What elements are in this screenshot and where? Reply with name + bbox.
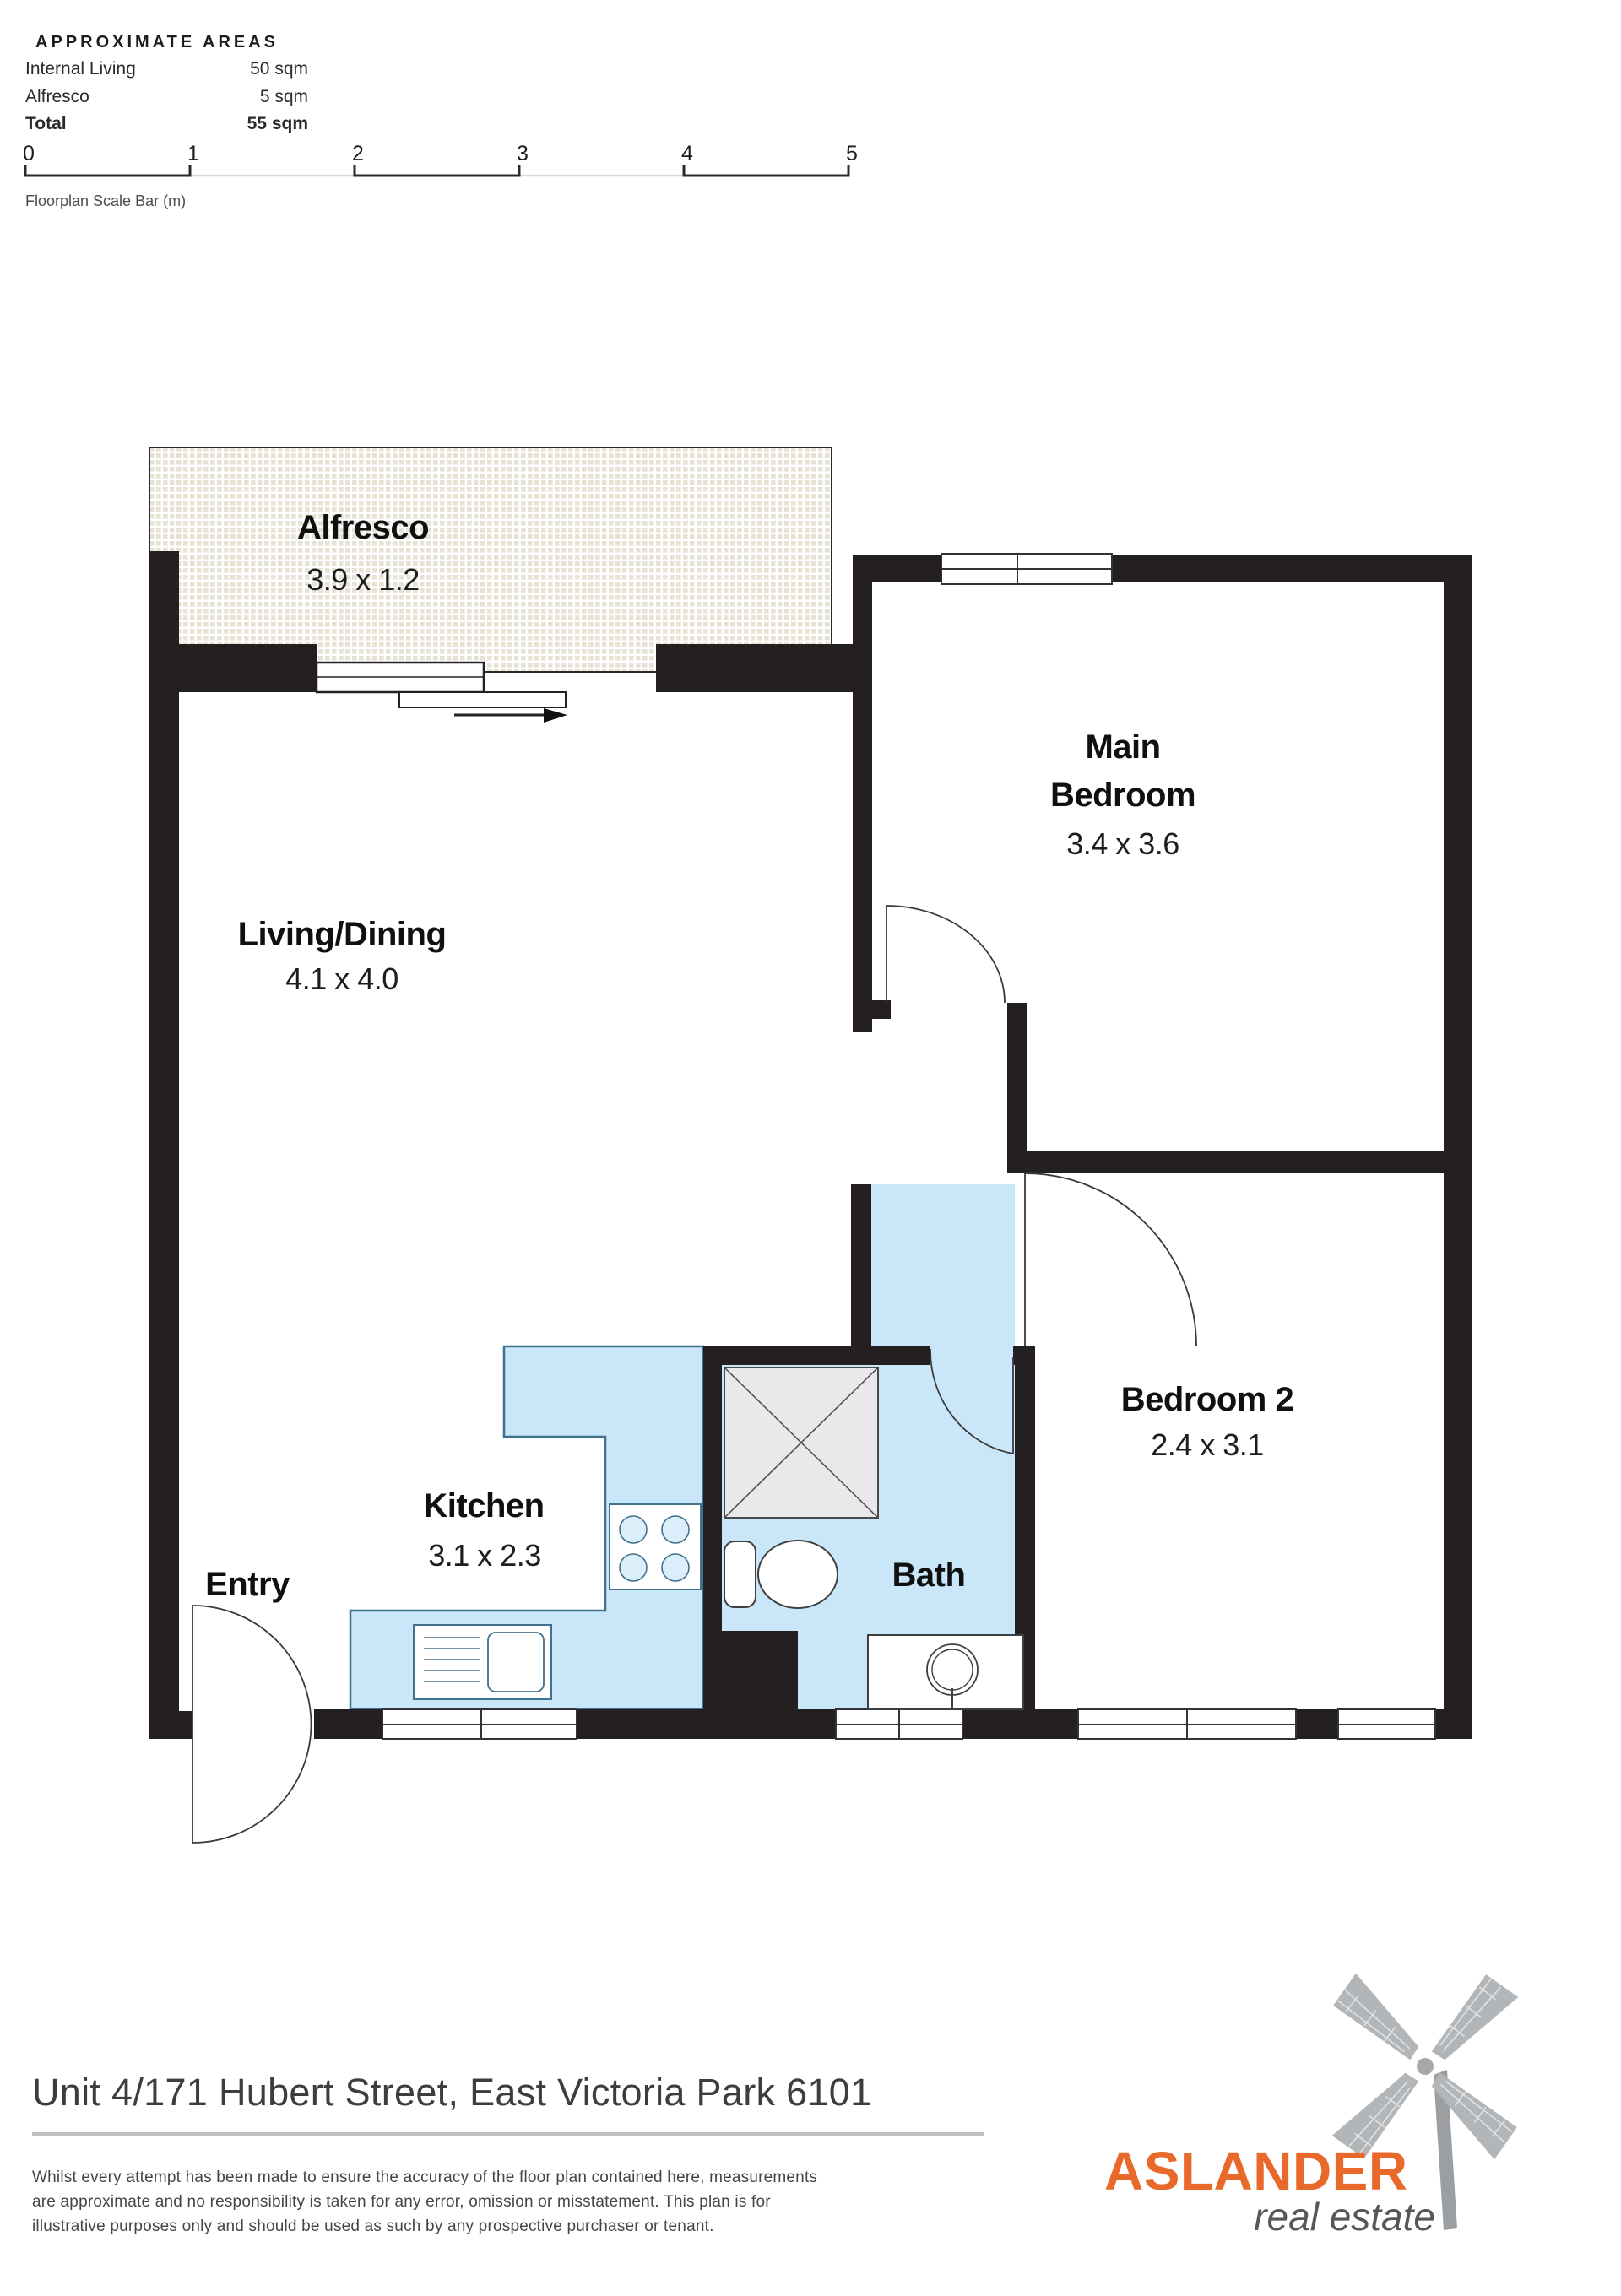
wall-west bbox=[149, 551, 179, 1711]
label-living: Living/Dining bbox=[238, 916, 447, 953]
scale-bar-segment bbox=[684, 165, 848, 176]
cooktop bbox=[610, 1504, 701, 1589]
label-main-bedroom-1: Main bbox=[1085, 728, 1160, 766]
label-entry: Entry bbox=[205, 1566, 290, 1603]
scale-bar-caption: Floorplan Scale Bar (m) bbox=[25, 192, 186, 209]
window-main-bedroom bbox=[941, 554, 1112, 584]
floorplan-page: APPROXIMATE AREAS Internal Living 50 sqm… bbox=[0, 0, 1621, 2292]
floorplan-canvas: APPROXIMATE AREAS Internal Living 50 sqm… bbox=[0, 0, 1621, 2292]
sink bbox=[414, 1625, 551, 1699]
disclaimer-line: Whilst every attempt has been made to en… bbox=[32, 2169, 817, 2186]
scale-tick-label: 5 bbox=[846, 142, 858, 165]
wall-hall-corner bbox=[1007, 1003, 1027, 1151]
scale-tick-label: 4 bbox=[681, 142, 693, 165]
wall-bedroom-north-east bbox=[1112, 555, 1472, 582]
brand-logo: ASLANDER real estate bbox=[1104, 1969, 1522, 2239]
vestibule-floor bbox=[871, 1184, 1015, 1365]
wall-south-4 bbox=[1296, 1709, 1338, 1739]
shower bbox=[724, 1367, 878, 1518]
dims-living: 4.1 x 4.0 bbox=[285, 961, 398, 996]
disclaimer-line: illustrative purposes only and should be… bbox=[32, 2217, 714, 2235]
areas-row-value: 5 sqm bbox=[260, 87, 308, 106]
window-bedroom2-single bbox=[1338, 1709, 1435, 1739]
brand-name: ASLANDER bbox=[1104, 2141, 1408, 2201]
wall-bedroom-west bbox=[853, 555, 872, 1032]
wall-hall-west bbox=[851, 1184, 871, 1346]
window-kitchen bbox=[382, 1709, 577, 1739]
wall-south-1 bbox=[314, 1709, 382, 1739]
dims-bedroom2: 2.4 x 3.1 bbox=[1151, 1427, 1264, 1462]
brand-tagline: real estate bbox=[1254, 2195, 1435, 2239]
vanity bbox=[868, 1635, 1023, 1709]
window-bedroom2-double bbox=[1078, 1709, 1296, 1739]
bath-cupboard-block bbox=[716, 1631, 798, 1719]
window-bath bbox=[836, 1709, 962, 1739]
wall-bedroom-divider bbox=[1007, 1151, 1444, 1173]
windmill-hub bbox=[1417, 2058, 1434, 2075]
dims-kitchen: 3.1 x 2.3 bbox=[428, 1538, 541, 1573]
scale-bar-segment bbox=[25, 165, 190, 176]
wall-bedroom-door-jamb bbox=[872, 1000, 891, 1019]
scale-bar: 0 1 2 3 4 5 Floorplan Scale Bar (m) bbox=[23, 142, 858, 209]
address: Unit 4/171 Hubert Street, East Victoria … bbox=[32, 2071, 871, 2114]
areas-summary: APPROXIMATE AREAS Internal Living 50 sqm… bbox=[25, 33, 308, 133]
areas-row-label: Alfresco bbox=[25, 87, 89, 106]
wall-bath-north bbox=[722, 1346, 930, 1365]
areas-row-label-total: Total bbox=[25, 114, 67, 133]
label-bedroom2: Bedroom 2 bbox=[1121, 1381, 1293, 1418]
wall-south-3 bbox=[962, 1709, 1078, 1739]
wall-alfresco-south-west bbox=[179, 644, 317, 692]
label-main-bedroom-2: Bedroom bbox=[1050, 777, 1195, 814]
areas-title: APPROXIMATE AREAS bbox=[35, 33, 279, 51]
wall-alfresco-south-east bbox=[656, 644, 872, 692]
scale-tick-label: 2 bbox=[352, 142, 364, 165]
areas-row-value: 50 sqm bbox=[250, 59, 308, 79]
label-bath: Bath bbox=[892, 1557, 966, 1594]
areas-row-value-total: 55 sqm bbox=[247, 114, 308, 133]
alfresco-deck bbox=[149, 447, 832, 672]
dims-alfresco: 3.9 x 1.2 bbox=[306, 562, 420, 597]
floorplan: Alfresco 3.9 x 1.2 Living/Dining 4.1 x 4… bbox=[149, 447, 1472, 1843]
main-bedroom-door bbox=[886, 906, 1005, 1003]
scale-tick-label: 0 bbox=[23, 142, 35, 165]
dims-main-bedroom: 3.4 x 3.6 bbox=[1066, 826, 1179, 861]
wall-east bbox=[1444, 555, 1472, 1739]
scale-tick-label: 3 bbox=[517, 142, 529, 165]
scale-bar-segment bbox=[355, 165, 519, 176]
footer: Unit 4/171 Hubert Street, East Victoria … bbox=[32, 2071, 984, 2235]
wall-entry-corner bbox=[149, 1711, 192, 1739]
areas-row-label: Internal Living bbox=[25, 59, 136, 79]
divider-rule bbox=[32, 2132, 984, 2136]
toilet bbox=[724, 1541, 838, 1608]
slide-arrow-head bbox=[544, 708, 567, 723]
scale-tick-label: 1 bbox=[187, 142, 199, 165]
label-alfresco: Alfresco bbox=[297, 509, 429, 546]
entry-door bbox=[192, 1606, 312, 1843]
windmill-blades bbox=[1328, 1969, 1521, 2163]
label-kitchen: Kitchen bbox=[423, 1487, 544, 1524]
disclaimer-line: are approximate and no responsibility is… bbox=[32, 2193, 771, 2211]
bedroom2-door bbox=[1025, 1173, 1196, 1346]
wall-south-corner bbox=[1435, 1709, 1472, 1739]
